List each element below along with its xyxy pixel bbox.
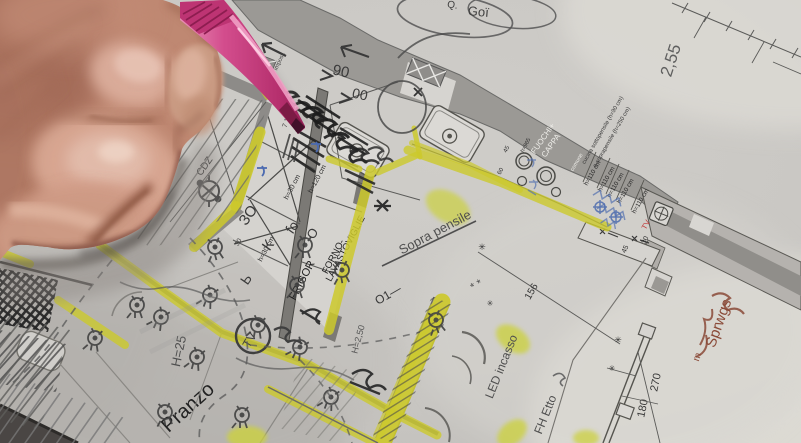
svg-text:Goï: Goï (467, 3, 490, 20)
svg-text:✳: ✳ (614, 335, 622, 345)
svg-text:✳: ✳ (487, 299, 494, 308)
svg-text:✳: ✳ (478, 242, 486, 252)
svg-text:✳: ✳ (609, 364, 616, 373)
svg-text:Q.: Q. (446, 0, 458, 12)
svg-text:90: 90 (331, 62, 351, 82)
